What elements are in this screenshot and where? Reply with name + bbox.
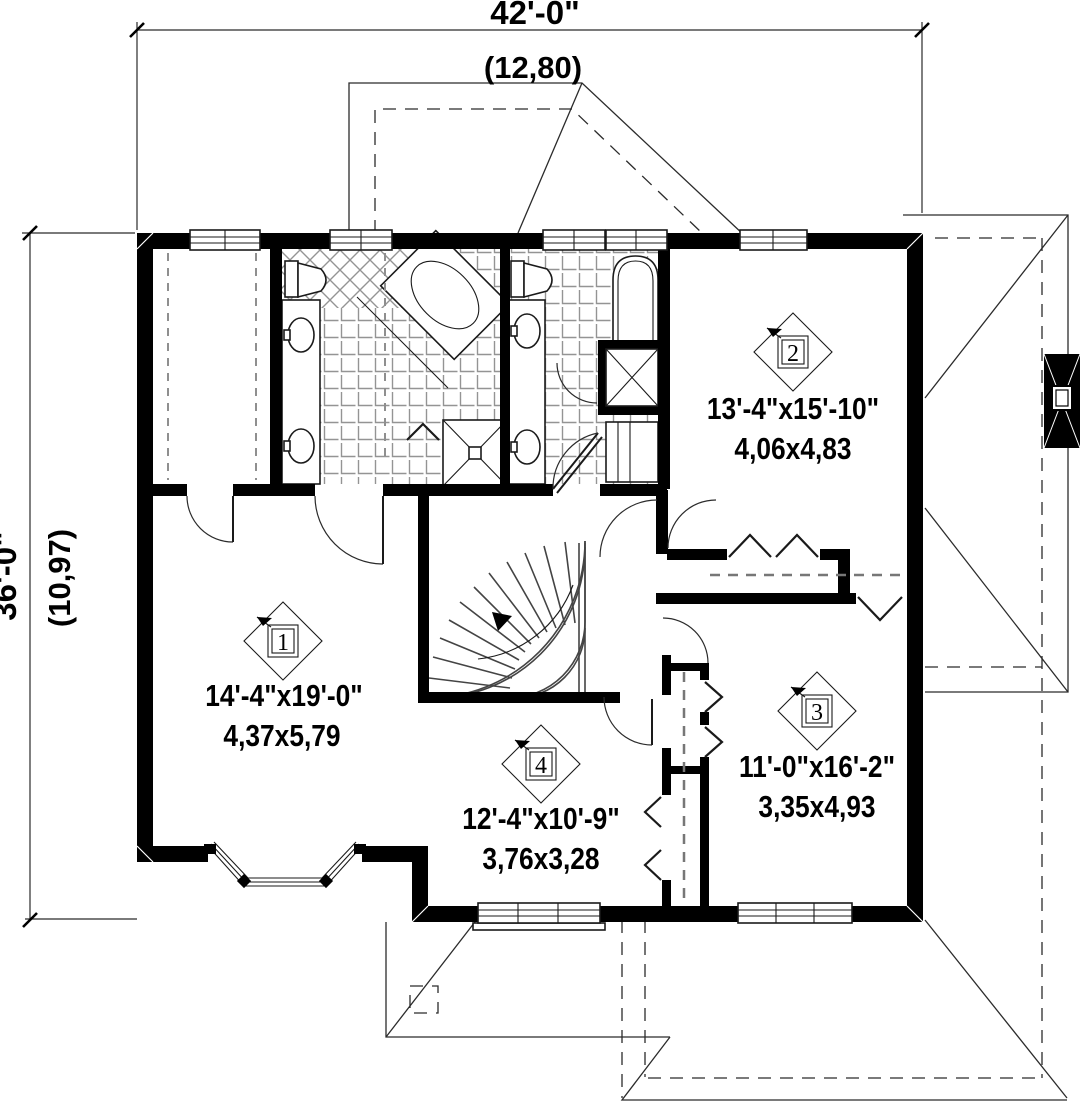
wall-corridor bbox=[233, 484, 315, 496]
porch-roof-bottom-hip bbox=[386, 918, 478, 1037]
dimension-top-metric: (12,80) bbox=[484, 50, 582, 85]
porch-roof-top-outline bbox=[349, 83, 745, 238]
wall-closet-room3-right bbox=[700, 712, 709, 725]
chimney bbox=[1044, 354, 1080, 448]
room-2-imperial: 13'-4"x15'-10" bbox=[707, 392, 879, 426]
room-4-metric: 3,76x3,28 bbox=[482, 842, 599, 876]
floor-plan-page: 1 14'-4"x19'-0" 4,37x5,79 2 13'-4"x15'-1… bbox=[0, 0, 1080, 1106]
room-1-number: 1 bbox=[277, 630, 289, 656]
lower-roof-hip-right bbox=[925, 920, 1067, 1098]
toilet-tank-icon bbox=[285, 261, 298, 297]
sink-icon bbox=[288, 429, 314, 463]
wall-corridor bbox=[383, 484, 553, 496]
room-3-metric: 3,35x4,93 bbox=[758, 790, 875, 824]
wall-hall-room2 bbox=[656, 490, 668, 554]
window bbox=[473, 903, 605, 930]
faucet-icon bbox=[511, 442, 517, 452]
porch-roof-top-dashed bbox=[375, 109, 702, 233]
wall-left bbox=[137, 233, 153, 862]
garage-roof-hip-bottom bbox=[925, 508, 1068, 692]
wall-hall-room4 bbox=[662, 880, 671, 907]
shower-wall bbox=[598, 406, 660, 415]
wall-closet-top bbox=[662, 663, 708, 671]
lower-roof-eave-bottom bbox=[622, 1037, 1067, 1100]
dimension-left-imperial: 36'-0" bbox=[0, 531, 23, 621]
window bbox=[738, 903, 852, 923]
faucet-icon bbox=[284, 441, 290, 451]
wall-bath-room2 bbox=[658, 249, 670, 489]
shower-drain bbox=[469, 447, 481, 459]
wall-bath-divider bbox=[500, 249, 510, 489]
sink-icon bbox=[288, 318, 314, 352]
room-1-imperial: 14'-4"x19'-0" bbox=[205, 679, 363, 713]
room-1-metric: 4,37x5,79 bbox=[223, 719, 340, 753]
room-3-imperial: 11'-0"x16'-2" bbox=[739, 750, 895, 784]
linen-closet bbox=[606, 422, 658, 482]
dimension-top-imperial: 42'-0" bbox=[490, 0, 580, 31]
room-2-number: 2 bbox=[787, 341, 799, 367]
dimension-left: 36'-0" (10,97) bbox=[0, 226, 135, 927]
floor-plan-drawing: 1 14'-4"x19'-0" 4,37x5,79 2 13'-4"x15'-1… bbox=[0, 0, 1080, 1106]
wall-right bbox=[907, 233, 923, 922]
wall-closet-mid bbox=[662, 766, 709, 774]
shower-wall bbox=[598, 340, 606, 415]
wall-room2-closet bbox=[667, 549, 727, 560]
wall-closet-bath bbox=[270, 249, 282, 489]
wall-closet-room3-right bbox=[700, 757, 709, 907]
room-2-metric: 4,06x4,83 bbox=[734, 432, 851, 466]
room-4-number: 4 bbox=[535, 753, 547, 779]
sink-icon bbox=[514, 430, 540, 464]
room-3-number: 3 bbox=[811, 700, 823, 726]
room-4-imperial: 12'-4"x10'-9" bbox=[462, 802, 620, 836]
wall-corridor bbox=[152, 484, 187, 496]
window bbox=[606, 230, 667, 250]
wall-stair-left bbox=[418, 490, 429, 703]
window bbox=[330, 230, 392, 250]
porch-roof-top-hip bbox=[518, 83, 582, 233]
porch-roof-bottom-outline bbox=[386, 918, 670, 1037]
shower-wall bbox=[598, 340, 660, 349]
dimension-left-metric: (10,97) bbox=[42, 529, 77, 627]
wall-closet-room3 bbox=[656, 593, 856, 604]
window bbox=[190, 230, 260, 250]
toilet-tank-icon bbox=[511, 261, 524, 297]
sink-icon bbox=[514, 314, 540, 348]
garage-roof-outline bbox=[903, 215, 1068, 692]
dimension-top: 42'-0" (12,80) bbox=[130, 0, 929, 230]
wall-stair-bottom bbox=[418, 692, 620, 703]
window bbox=[543, 230, 605, 250]
wall-hall-room4 bbox=[662, 655, 671, 695]
faucet-icon bbox=[511, 326, 517, 336]
faucet-icon bbox=[284, 330, 290, 340]
window bbox=[740, 230, 807, 250]
